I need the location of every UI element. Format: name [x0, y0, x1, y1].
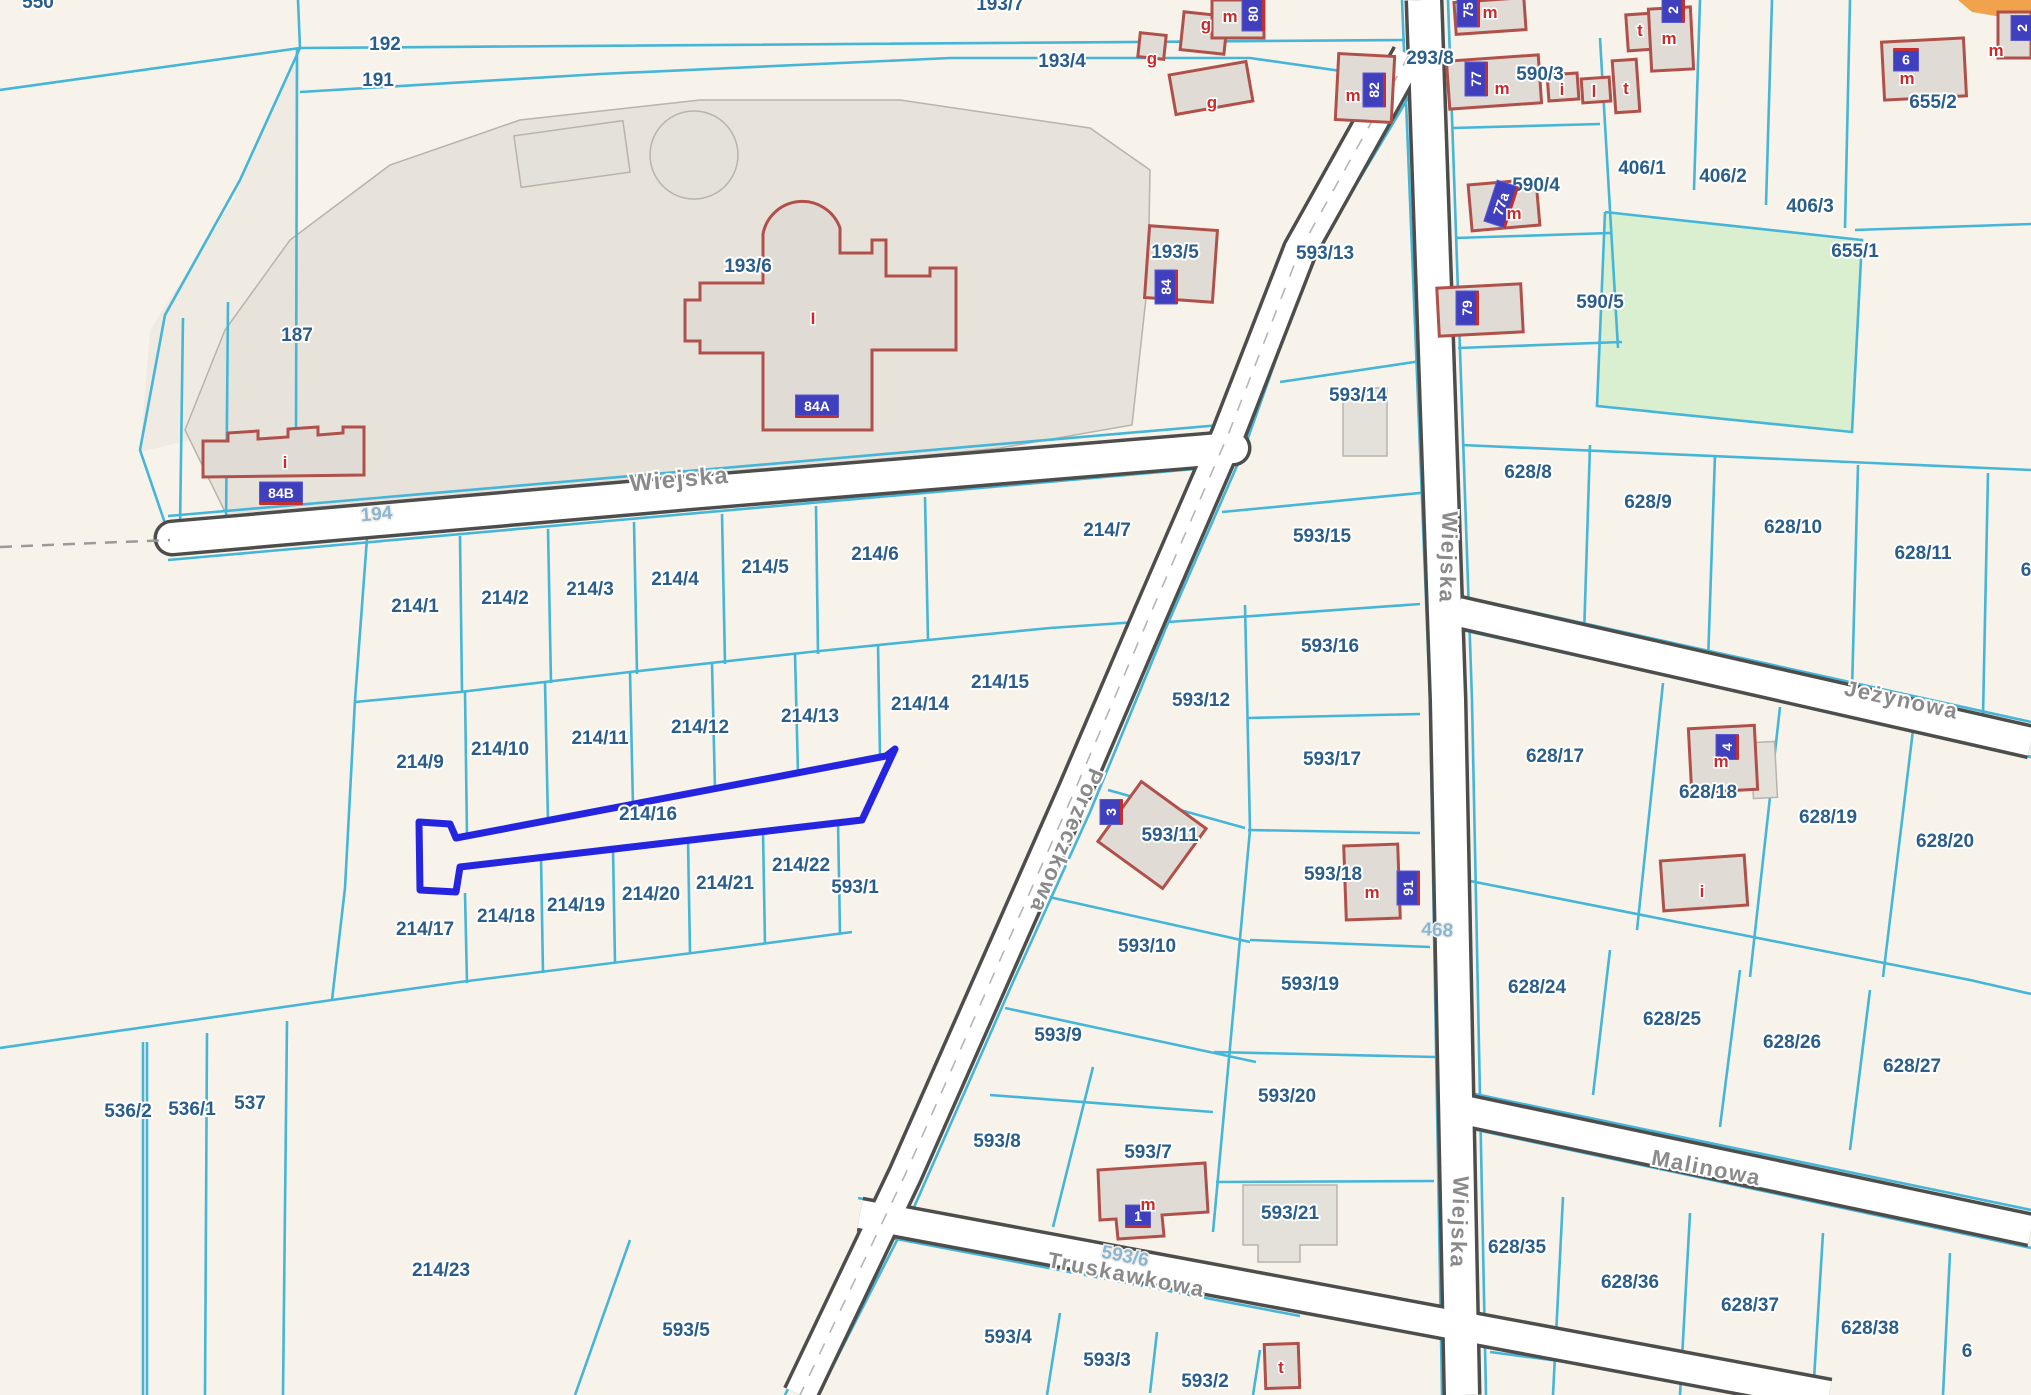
building-function-letter: g	[1147, 49, 1157, 68]
parcel-label: 593/19	[1281, 974, 1339, 995]
address-badge-underline	[1175, 270, 1178, 304]
address-badge-underline	[1477, 0, 1480, 27]
parcel-label: 628/10	[1764, 517, 1822, 538]
parcel-label: 214/7	[1083, 520, 1131, 541]
parcel-label: 593/3	[1083, 1350, 1131, 1371]
parcel-label: 214/17	[396, 919, 454, 940]
parcel-label: 6	[2021, 560, 2031, 581]
address-badge-number: 3	[1103, 808, 1119, 816]
parcel-label: 214/9	[396, 752, 444, 773]
building-function-letter: m	[1222, 7, 1237, 26]
building-function-letter: m	[1482, 3, 1497, 22]
building-function-letter: m	[1345, 86, 1360, 105]
parcel-boundary-line	[1216, 1181, 1434, 1182]
address-badge-underline	[1476, 291, 1479, 325]
parcel-label: 406/2	[1699, 166, 1747, 187]
address-badge-underline	[796, 415, 839, 418]
address-badge-number: 82	[1366, 82, 1382, 98]
parcel-label: 628/11	[1894, 543, 1951, 564]
building-function-letter: m	[1988, 41, 2003, 60]
parcel-label: 628/9	[1624, 492, 1672, 513]
address-badge-number: 77	[1468, 71, 1484, 87]
parcel-label: 628/8	[1504, 462, 1552, 483]
parcel-label: 593/18	[1304, 864, 1362, 885]
parcel-label: 628/20	[1916, 831, 1974, 852]
address-badge: 2	[1662, 0, 1685, 23]
street-name-label: Wiejska	[1434, 511, 1462, 604]
parcel-label: 628/26	[1763, 1032, 1821, 1053]
address-badge: 84A	[796, 395, 839, 418]
address-badge-underline	[1262, 0, 1265, 31]
parcel-label: 628/27	[1883, 1056, 1941, 1077]
parcel-boundary-line	[296, 48, 297, 434]
address-badge-underline	[1485, 62, 1488, 96]
parcel-label: 214/1	[391, 596, 439, 617]
address-badge-number: 2	[1665, 6, 1681, 14]
parcel-label: 293/8	[1406, 48, 1454, 69]
parcel-label: 593/7	[1124, 1142, 1172, 1163]
building-function-letter: t	[1623, 79, 1629, 98]
address-badge-number: 80	[1245, 6, 1261, 22]
parcel-label: 187	[281, 325, 313, 346]
building-function-letter: i	[283, 453, 288, 472]
parcel-label: 628/25	[1643, 1009, 1702, 1030]
parcel-label: 628/17	[1526, 746, 1584, 767]
parcel-label: 193/7	[976, 0, 1024, 15]
green-field-region	[1597, 212, 1862, 432]
address-badge-underline	[1417, 871, 1420, 905]
parcel-label: 628/36	[1601, 1272, 1659, 1293]
address-badge-underline	[1120, 800, 1123, 825]
parcel-label: 214/12	[671, 717, 729, 738]
parcel-label: 593/15	[1293, 526, 1352, 547]
building	[1437, 284, 1523, 336]
parcel-label: 593/14	[1329, 385, 1388, 406]
building-function-letter: g	[1207, 93, 1217, 112]
school-round-structure	[650, 111, 738, 199]
parcel-label: 628/38	[1841, 1318, 1899, 1339]
parcel-label: 655/2	[1909, 92, 1957, 113]
address-badge: 80	[1242, 0, 1265, 31]
parcel-label: 628/37	[1721, 1295, 1779, 1316]
parcel-label: 406/3	[1786, 196, 1834, 217]
parcel-label: 214/22	[772, 855, 830, 876]
parcel-label: 593/16	[1301, 636, 1359, 657]
building-function-letter: m	[1899, 69, 1914, 88]
building-function-letter: i	[1560, 80, 1565, 99]
parcel-label: 214/3	[566, 579, 614, 600]
cadastral-map-canvas[interactable]: 593/1 WiejskaWiejskaWiejskaPorzeczkowaJe…	[0, 0, 2031, 1395]
address-badge: 91	[1397, 871, 1420, 905]
building-function-letter: I	[811, 309, 816, 328]
address-badge: 79	[1456, 291, 1479, 325]
building-function-letter: m	[1506, 204, 1521, 223]
parcel-label: 593/9	[1034, 1025, 1082, 1046]
parcel-label: 193/4	[1038, 51, 1086, 72]
address-badge-number: 4	[1719, 743, 1735, 751]
road-parcel-number: 468	[1421, 919, 1454, 942]
parcel-label: 214/23	[412, 1260, 470, 1281]
parcel-label: 593/20	[1258, 1086, 1316, 1107]
address-badge-number: 84	[1158, 279, 1174, 295]
address-badge-number: 84B	[268, 485, 294, 501]
address-badge: 75	[1457, 0, 1480, 27]
building-function-letter: m	[1140, 1195, 1155, 1214]
address-badge: 84	[1155, 270, 1178, 304]
parcel-label: 593/11	[1141, 825, 1198, 846]
parcel-label: 550	[22, 0, 54, 13]
parcel-label: 593/4	[984, 1327, 1032, 1348]
parcel-label: 214/16	[619, 804, 677, 825]
parcel-label: 628/24	[1508, 977, 1567, 998]
parcel-label: 192	[369, 34, 401, 55]
parcel-label: 214/19	[547, 895, 605, 916]
address-badge-number: 75	[1460, 2, 1476, 18]
address-badge-underline	[1894, 48, 1919, 51]
address-badge-number: 2	[2014, 24, 2030, 32]
parcel-label: 628/19	[1799, 807, 1857, 828]
parcel-label: 214/21	[696, 873, 755, 894]
building-function-letter: t	[1278, 1358, 1284, 1377]
parcel-label: 214/2	[481, 588, 529, 609]
address-badge-number: 79	[1459, 300, 1475, 316]
address-badge-underline	[1736, 735, 1739, 760]
parcel-label: 214/20	[622, 884, 680, 905]
address-badge-number: 9	[1902, 52, 1910, 68]
parcel-label: 628/18	[1679, 782, 1737, 803]
address-badge: 3	[1100, 800, 1123, 825]
address-badge: 9	[1894, 48, 1919, 71]
parcel-label: 655/1	[1831, 241, 1879, 262]
parcel-label: 214/18	[477, 906, 535, 927]
parcel-label: 593/12	[1172, 690, 1230, 711]
parcel-label: 593/5	[662, 1320, 710, 1341]
building-function-letter: m	[1494, 79, 1509, 98]
parcel-label: 593/8	[973, 1131, 1021, 1152]
address-badge-underline	[260, 502, 303, 505]
parcel-label: 593/21	[1261, 1203, 1320, 1224]
cadastral-map-viewport[interactable]: 593/1 WiejskaWiejskaWiejskaPorzeczkowaJe…	[0, 0, 2031, 1395]
building-function-letter: i	[1700, 882, 1705, 901]
building-function-letter: m	[1661, 29, 1676, 48]
building-function-letter: l	[1592, 82, 1597, 101]
building-function-letter: m	[1364, 883, 1379, 902]
parcel-label: 406/1	[1618, 158, 1666, 179]
address-badge: 77	[1465, 62, 1488, 96]
region-fill-layer	[0, 0, 2031, 1395]
street-name-label: Wiejska	[1445, 1176, 1473, 1269]
parcel-label: 628/35	[1488, 1237, 1547, 1258]
parcel-label: 214/11	[571, 728, 628, 749]
building-function-letter: t	[1637, 21, 1643, 40]
address-badge-underline	[1383, 73, 1386, 107]
parcel-label: 214/10	[471, 739, 529, 760]
parcel-label: 214/13	[781, 706, 839, 727]
parcel-label: 536/1	[168, 1099, 216, 1120]
parcel-label: 214/14	[891, 694, 950, 715]
address-badge-underline	[1682, 0, 1685, 23]
parcel-label: 590/4	[1512, 175, 1560, 196]
parcel-label: 214/4	[651, 569, 699, 590]
building-function-letter: m	[1713, 752, 1728, 771]
parcel-label: 593/1	[831, 877, 879, 898]
parcel-label: 214/6	[851, 544, 899, 565]
address-badge: 2	[2011, 16, 2031, 41]
parcel-label: 191	[362, 70, 394, 91]
address-badge: 84B	[260, 482, 303, 505]
parcel-label: 536/2	[104, 1101, 152, 1122]
parcel-label: 193/5	[1151, 242, 1199, 263]
parcel-label: 6	[1962, 1341, 1973, 1362]
parcel-label: 593/10	[1118, 936, 1176, 957]
parcel-label: 537	[234, 1093, 266, 1114]
parcel-label: 593/17	[1303, 749, 1361, 770]
parcel-label: 590/3	[1516, 64, 1564, 85]
parcel-label: 214/15	[971, 672, 1030, 693]
road-parcel-number: 194	[360, 503, 394, 527]
address-badge-number: 91	[1400, 880, 1416, 896]
address-badge: 82	[1363, 73, 1386, 107]
address-badge-underline	[1126, 1225, 1151, 1228]
parcel-label: 593/13	[1296, 243, 1354, 264]
address-badge-number: 84A	[804, 398, 830, 414]
building-function-letter: g	[1201, 15, 1211, 34]
parcel-label: 214/5	[741, 557, 789, 578]
parcel-label: 193/6	[724, 256, 772, 277]
parcel-label: 593/2	[1181, 1371, 1229, 1392]
parcel-label: 590/5	[1576, 292, 1624, 313]
under-road-label-layer: 593/1	[831, 877, 879, 898]
